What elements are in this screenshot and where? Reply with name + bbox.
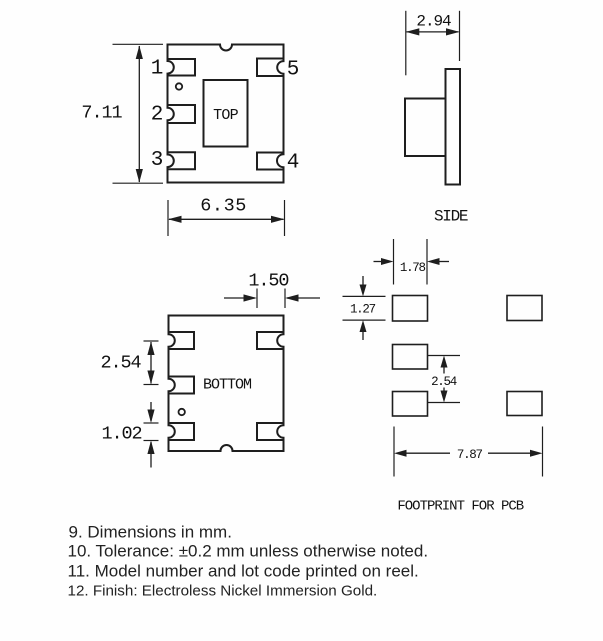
svg-text:1.78: 1.78: [400, 261, 426, 275]
svg-text:4: 4: [287, 152, 300, 175]
svg-text:11. Model number and lot code: 11. Model number and lot code printed on…: [68, 561, 419, 580]
svg-text:2.54: 2.54: [431, 375, 457, 389]
svg-text:1.02: 1.02: [101, 424, 141, 445]
svg-text:1.50: 1.50: [248, 271, 288, 292]
svg-text:2.54: 2.54: [100, 353, 141, 374]
svg-text:7.11: 7.11: [81, 103, 122, 124]
svg-text:2: 2: [151, 103, 164, 126]
svg-text:12. Finish: Electroless Nickel: 12. Finish: Electroless Nickel Immersion…: [68, 582, 378, 599]
svg-text:3: 3: [151, 149, 164, 172]
svg-text:6.35: 6.35: [200, 196, 247, 217]
svg-text:7.87: 7.87: [457, 448, 483, 462]
svg-text:FOOTPRINT FOR PCB: FOOTPRINT FOR PCB: [397, 498, 523, 514]
svg-text:TOP: TOP: [213, 107, 239, 124]
svg-text:1.27: 1.27: [350, 303, 376, 317]
svg-text:10. Tolerance: ±0.2 mm unless: 10. Tolerance: ±0.2 mm unless otherwise …: [68, 542, 429, 561]
svg-text:SIDE: SIDE: [434, 207, 468, 225]
svg-text:1: 1: [151, 58, 164, 81]
svg-text:2.94: 2.94: [416, 13, 451, 31]
svg-text:9. Dimensions in mm.: 9. Dimensions in mm.: [69, 523, 232, 542]
svg-text:BOTTOM: BOTTOM: [203, 377, 252, 394]
svg-text:5: 5: [287, 58, 300, 81]
